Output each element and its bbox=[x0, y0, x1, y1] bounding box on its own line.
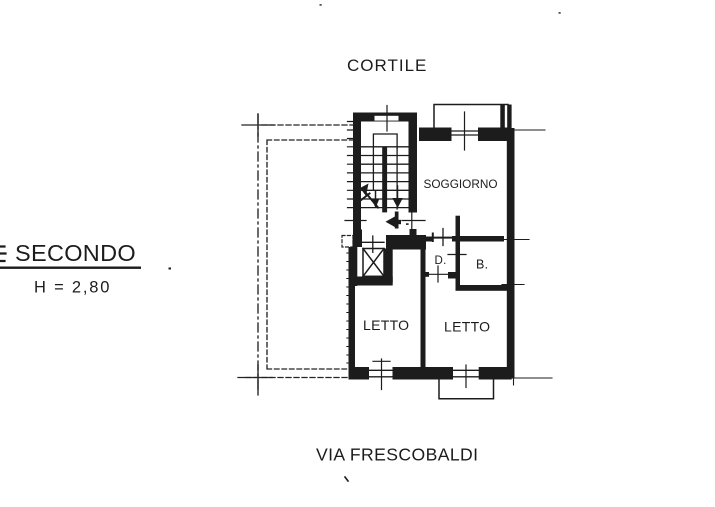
svg-text:CORTILE: CORTILE bbox=[347, 56, 427, 75]
svg-text:SECONDO: SECONDO bbox=[15, 240, 136, 266]
svg-text:B.: B. bbox=[476, 258, 488, 272]
svg-text:LETTO: LETTO bbox=[363, 317, 409, 333]
svg-text:VIA FRESCOBALDI: VIA FRESCOBALDI bbox=[316, 445, 478, 465]
svg-text:LETTO: LETTO bbox=[444, 319, 490, 335]
svg-text:H = 2,80: H = 2,80 bbox=[34, 279, 111, 297]
svg-text:D.: D. bbox=[435, 255, 447, 267]
svg-text:SOGGIORNO: SOGGIORNO bbox=[424, 177, 498, 191]
